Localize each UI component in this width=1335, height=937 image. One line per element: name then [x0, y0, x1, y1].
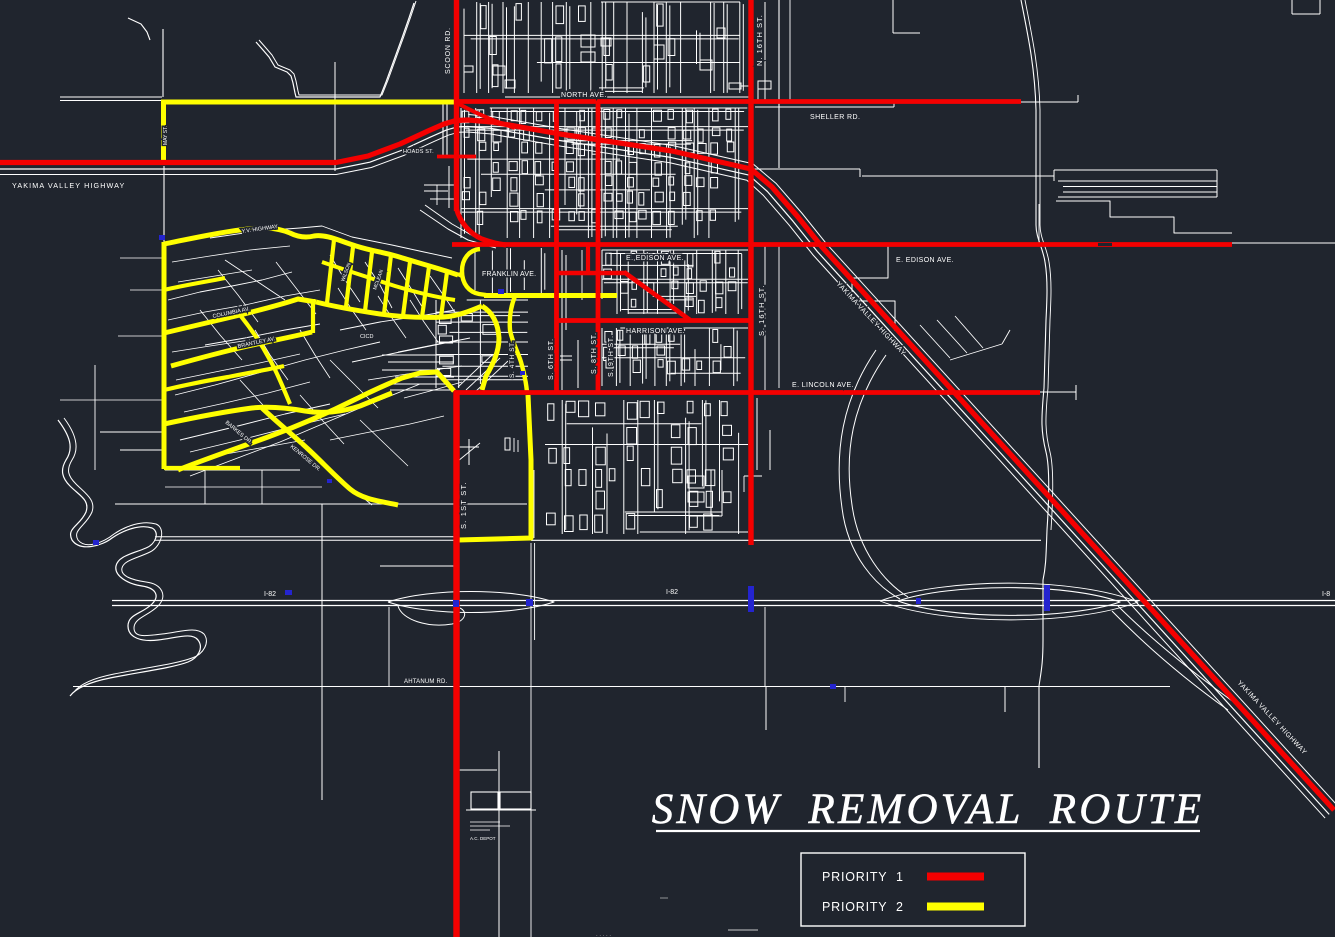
svg-text:PRIORITY 2: PRIORITY 2 — [822, 900, 904, 914]
svg-text:S. 4TH ST.: S. 4TH ST. — [509, 341, 516, 378]
svg-text:E. LINCOLN AVE.: E. LINCOLN AVE. — [792, 382, 854, 389]
svg-text:SHELLER RD.: SHELLER RD. — [810, 114, 860, 121]
svg-text:PRIORITY 1: PRIORITY 1 — [822, 870, 904, 884]
svg-text:I-8: I-8 — [1322, 591, 1330, 598]
svg-text:N. 16TH ST.: N. 16TH ST. — [755, 14, 764, 66]
svg-text:SNOW REMOVAL ROUTE: SNOW REMOVAL ROUTE — [652, 786, 1205, 833]
svg-text:YAKIMA VALLEY HIGHWAY: YAKIMA VALLEY HIGHWAY — [12, 181, 125, 190]
svg-text:NORTH AVE.: NORTH AVE. — [561, 92, 607, 99]
svg-text:I-82: I-82 — [666, 589, 678, 596]
svg-text:I-82: I-82 — [264, 591, 276, 598]
svg-text:E. EDISON AVE.: E. EDISON AVE. — [626, 255, 684, 262]
svg-text:SCOON RD.: SCOON RD. — [445, 27, 452, 74]
svg-text:S. 6TH ST.: S. 6TH ST. — [548, 338, 555, 380]
svg-text:S. 8TH ST.: S. 8TH ST. — [591, 332, 598, 374]
svg-text:. . . . .: . . . . . — [596, 932, 611, 937]
svg-text:S. 16TH ST.: S. 16TH ST. — [757, 285, 766, 336]
svg-text:A.C. DEPOT: A.C. DEPOT — [470, 836, 496, 841]
svg-text:E. EDISON AVE.: E. EDISON AVE. — [896, 257, 954, 264]
svg-text:HARRISON AVE.: HARRISON AVE. — [626, 328, 685, 335]
svg-text:FRANKLIN AVE.: FRANKLIN AVE. — [482, 271, 536, 278]
svg-text:S. 9TH ST.: S. 9TH ST. — [608, 335, 615, 377]
svg-text:HOADS ST.: HOADS ST. — [403, 149, 434, 155]
svg-text:CICD: CICD — [360, 334, 373, 340]
svg-text:AHTANUM RD.: AHTANUM RD. — [404, 679, 448, 685]
svg-text:S. 1ST ST.: S. 1ST ST. — [459, 481, 468, 529]
svg-text:MAY ST.: MAY ST. — [163, 126, 169, 145]
